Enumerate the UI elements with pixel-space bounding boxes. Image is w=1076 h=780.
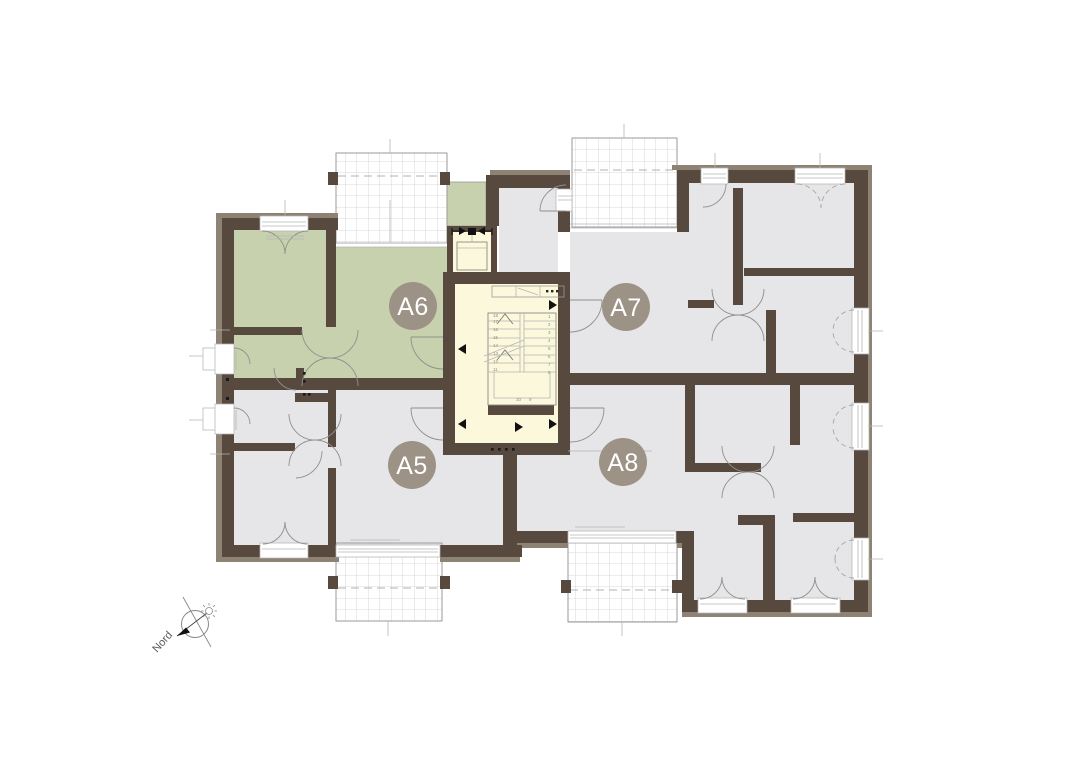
unit-badge-a5[interactable]: A5 <box>388 441 436 489</box>
unit-badge-a6[interactable]: A6 <box>389 282 437 330</box>
svg-text:15: 15 <box>493 335 499 340</box>
svg-text:17: 17 <box>493 319 499 324</box>
floor-plan-page: 11 12 13 14 15 16 17 18 1 2 3 4 5 6 7 8 … <box>0 0 1076 780</box>
floor-plan-svg: 11 12 13 14 15 16 17 18 1 2 3 4 5 6 7 8 … <box>0 0 1076 780</box>
sun-icon <box>201 603 217 619</box>
svg-text:18: 18 <box>493 313 499 318</box>
svg-text:10: 10 <box>516 397 522 402</box>
unit-badge-a5-label[interactable]: A5 <box>396 452 428 480</box>
balcony-a8 <box>568 543 677 622</box>
svg-text:13: 13 <box>493 351 499 356</box>
unit-badge-a8-label[interactable]: A8 <box>607 449 639 477</box>
balcony-a6 <box>336 153 447 243</box>
unit-a6-annex-floor <box>447 182 486 226</box>
svg-text:12: 12 <box>493 359 499 364</box>
north-arrow: Nord <box>150 597 217 655</box>
unit-badge-a7-label[interactable]: A7 <box>610 294 642 322</box>
north-label: Nord <box>150 629 175 655</box>
unit-badge-a6-label[interactable]: A6 <box>397 293 429 321</box>
svg-text:11: 11 <box>493 367 498 372</box>
balcony-a7 <box>572 138 677 227</box>
svg-text:14: 14 <box>493 343 499 348</box>
svg-text:16: 16 <box>493 327 499 332</box>
unit-badge-a8[interactable]: A8 <box>599 438 647 486</box>
counter-dots <box>546 290 558 292</box>
compass-needle-head <box>177 628 190 637</box>
compass-diagonal-line <box>183 597 211 647</box>
unit-badge-a7[interactable]: A7 <box>602 283 650 331</box>
